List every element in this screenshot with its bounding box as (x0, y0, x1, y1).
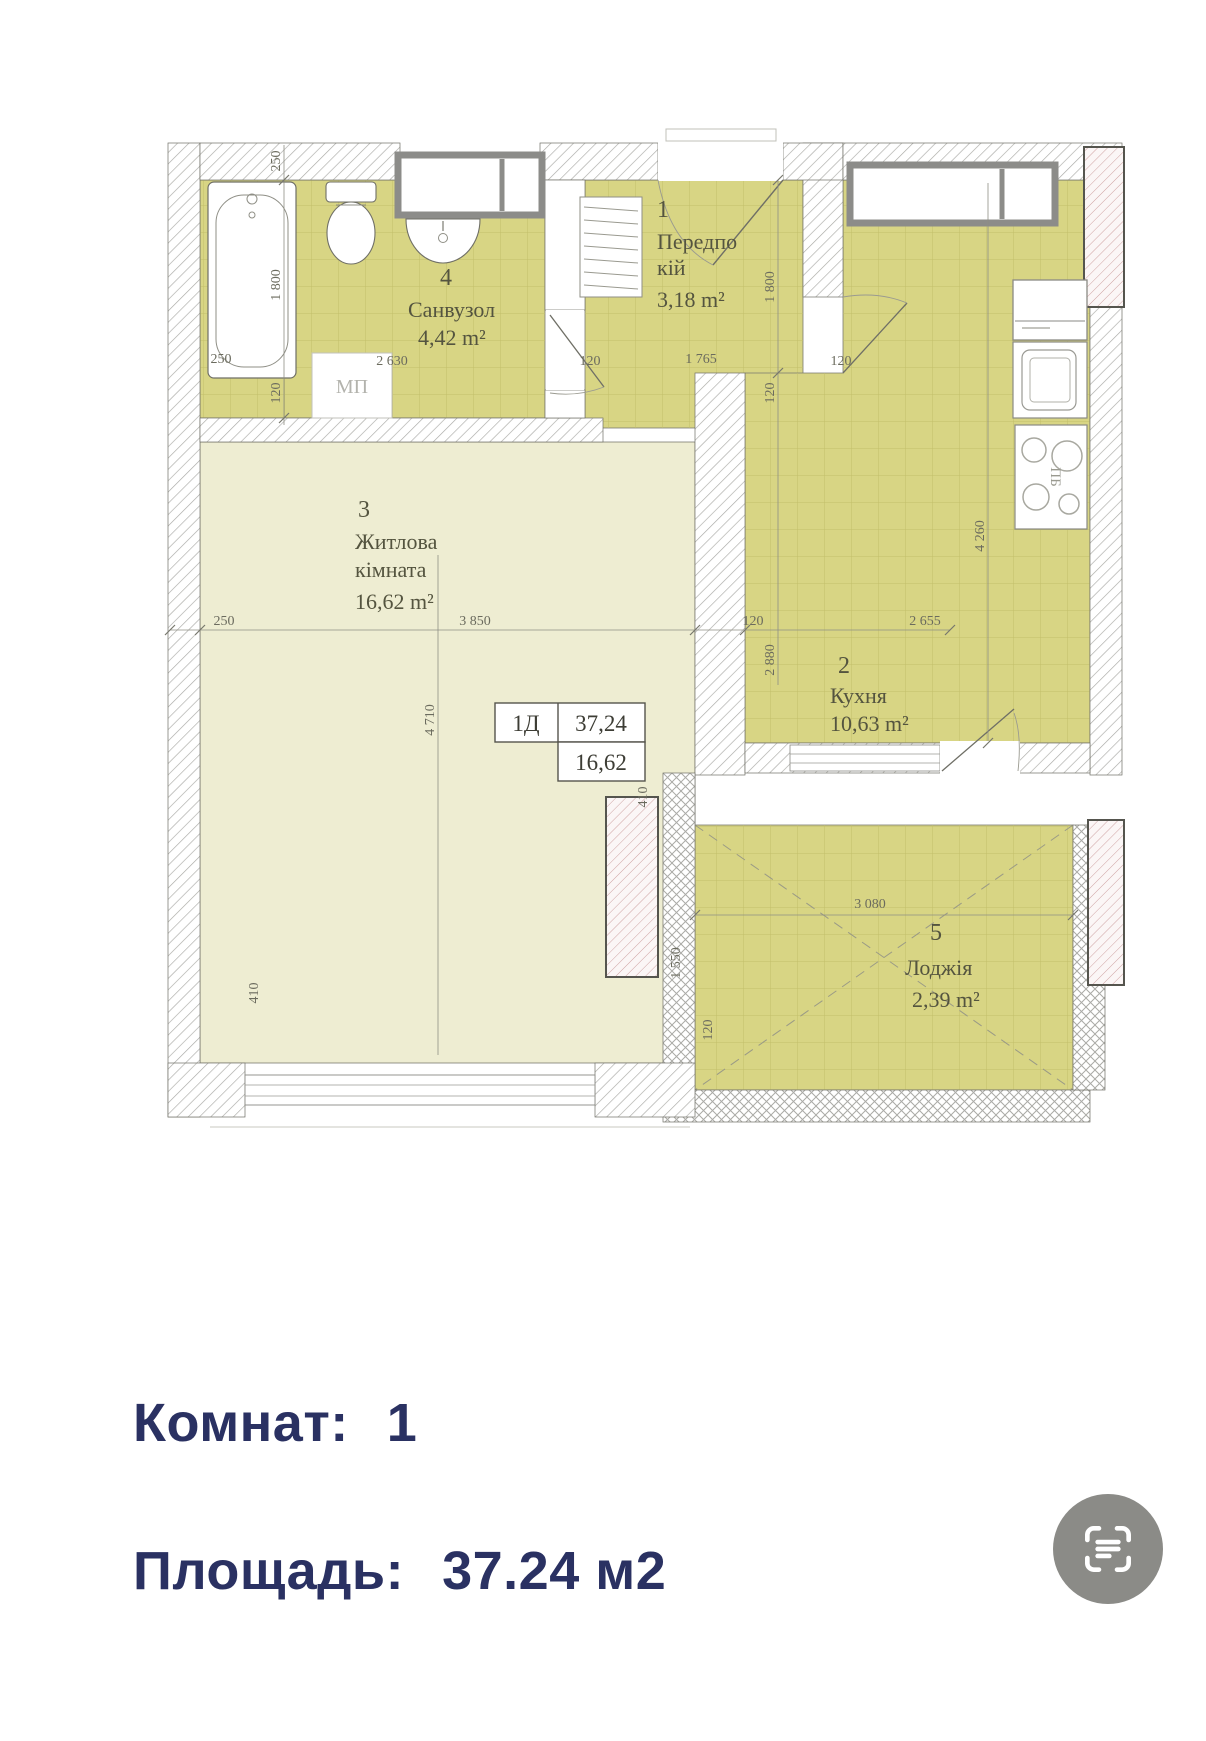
bathroom-name: Санвузол (408, 297, 495, 322)
dim-kitchen-width: 2 655 (909, 614, 941, 629)
bathroom-cabinet (398, 155, 542, 215)
wall-living-kitchen (695, 373, 745, 775)
bathroom-door-opening (546, 310, 584, 390)
fridge (1013, 280, 1087, 340)
dim-bath-wall: 250 (211, 352, 232, 367)
dim-bath-length: 1 800 (269, 269, 284, 301)
bathroom-number: 4 (440, 265, 452, 291)
wall-bathroom-living (200, 418, 603, 442)
scan-text-button[interactable] (1053, 1494, 1163, 1604)
dim-hall-length: 1 800 (763, 271, 778, 303)
wall-loggia-bottom (663, 1090, 1090, 1122)
washing-machine-label: МП (336, 376, 368, 398)
kitchen-name: Кухня (830, 683, 887, 708)
living-name-1: Житлова (355, 529, 438, 554)
loggia-number: 5 (930, 920, 942, 946)
wall-bottom-right (595, 1063, 695, 1117)
dim-hall-wall-bottom: 120 (763, 383, 778, 404)
dim-kitchen-len2: 4 260 (973, 520, 988, 552)
wall-top-column (783, 143, 843, 180)
dim-loggia-wall-bottom: 120 (701, 1020, 716, 1041)
hallway-name-1: Передпо (657, 229, 737, 254)
stove-label: ПБ (1047, 467, 1063, 486)
kitchen-sink (1013, 342, 1087, 418)
balcony-door-opening (940, 741, 1020, 775)
loggia-gap (662, 773, 1090, 821)
dim-living-wall: 250 (214, 614, 235, 629)
kitchen-window (850, 165, 1055, 223)
dim-loggia-wall: 410 (636, 787, 651, 808)
column-loggia-left (606, 797, 658, 977)
dim-living-length: 4 710 (423, 704, 438, 736)
rooms-summary: Комнат: 1 (133, 1392, 417, 1454)
kitchen-number: 2 (838, 653, 850, 679)
dim-kitchen-wall: 120 (743, 614, 764, 629)
floor-plan-svg: МП (150, 125, 1125, 1135)
dim-kitchen-len1: 2 880 (763, 644, 778, 676)
dim-hall-width: 1 765 (685, 352, 717, 367)
scan-text-icon (1077, 1518, 1139, 1580)
rooms-label: Комнат: (133, 1392, 349, 1454)
area-summary: Площадь: 37.24 м2 (133, 1540, 666, 1602)
dim-wall-top: 250 (269, 151, 284, 172)
hallway-name-2: кій (657, 255, 686, 280)
toilet (326, 182, 376, 264)
dim-loggia-width: 3 080 (854, 897, 886, 912)
kitchen-loggia-window (790, 745, 940, 771)
screenshot: МП (0, 0, 1206, 1741)
hallway-area: 3,18 m² (657, 287, 725, 312)
living-window (245, 1075, 595, 1105)
living-area: 16,62 m² (355, 589, 434, 614)
dim-living-width: 3 850 (459, 614, 491, 629)
apartment-code: 1Д (512, 711, 540, 736)
loggia-area: 2,39 m² (912, 987, 980, 1012)
column-top-right (1084, 147, 1124, 307)
wall-top-bathroom (200, 143, 400, 180)
bathroom-area: 4,42 m² (418, 325, 486, 350)
column-loggia-right (1088, 820, 1124, 985)
apartment-living-area: 16,62 (575, 750, 627, 775)
living-number: 3 (358, 497, 370, 523)
rooms-value: 1 (387, 1392, 418, 1454)
loggia-name: Лоджія (905, 955, 972, 980)
kitchen-area: 10,63 m² (830, 711, 909, 736)
hallway-number: 1 (657, 197, 669, 223)
dim-bath-wall2: 120 (269, 383, 284, 404)
floor-plan: МП (150, 125, 1125, 1135)
entry-step (666, 129, 776, 141)
living-name-2: кімната (355, 557, 427, 582)
area-value: 37.24 м2 (442, 1540, 666, 1602)
dim-hall-wall-left: 120 (580, 354, 601, 369)
wall-bottom-left (168, 1063, 245, 1117)
hall-closet (580, 197, 642, 297)
apartment-total-area: 37,24 (575, 711, 627, 736)
wall-top-hallway (540, 143, 658, 180)
dim-bath-width: 2 630 (376, 354, 408, 369)
dim-hall-wall-right: 120 (831, 354, 852, 369)
dim-living-window: 410 (247, 983, 262, 1004)
stove: ПБ (1015, 425, 1087, 529)
entry-opening (658, 141, 783, 181)
wall-bath-hall-upper (545, 180, 585, 310)
area-label: Площадь: (133, 1540, 404, 1602)
dim-loggia-length: 1 550 (669, 947, 684, 979)
